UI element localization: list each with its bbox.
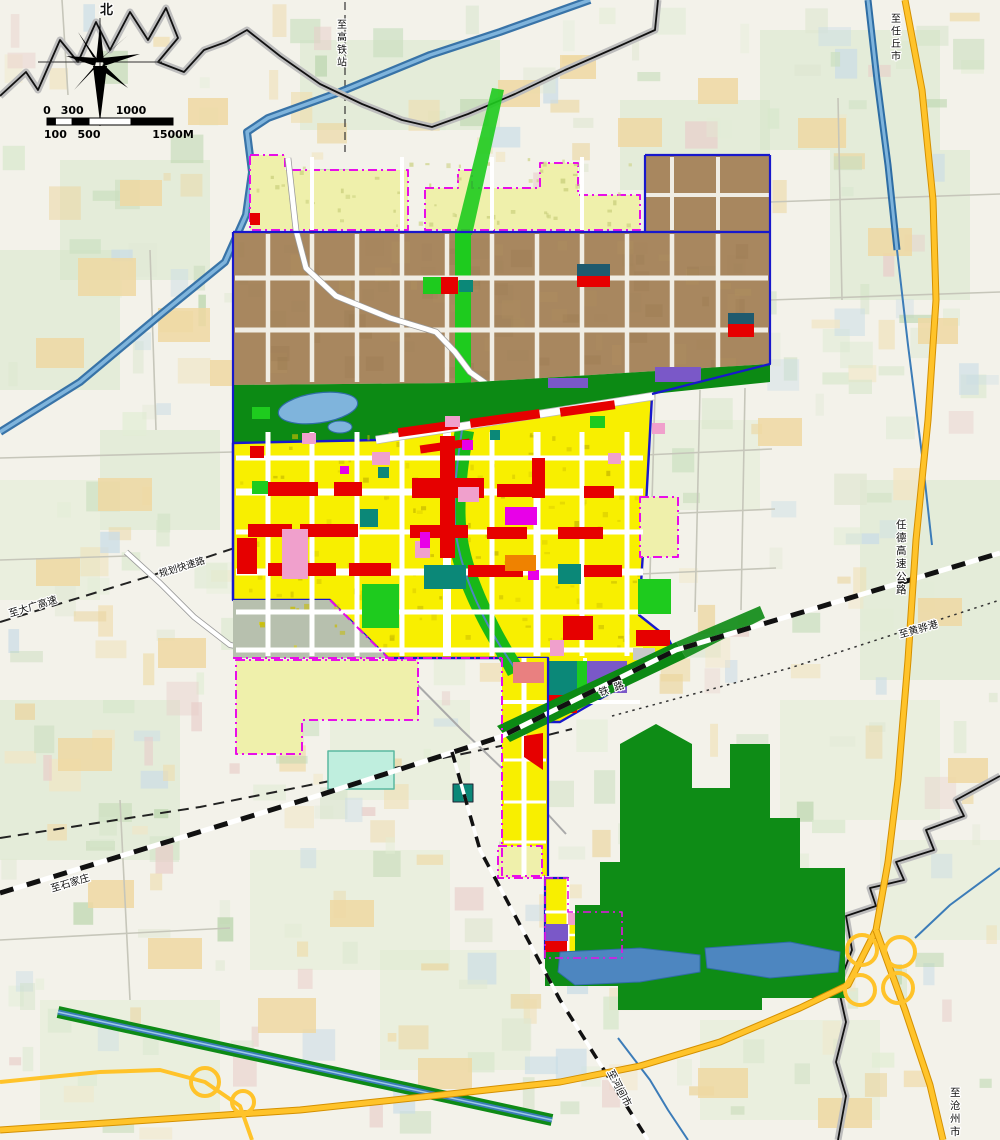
rural-texture <box>78 1075 97 1086</box>
brown-texture <box>249 284 263 297</box>
scalebar-segment <box>89 118 131 125</box>
rural-texture <box>879 320 895 350</box>
city-texture <box>544 552 550 554</box>
city-texture <box>468 523 470 528</box>
city-texture <box>560 502 565 505</box>
rural-texture <box>96 640 127 658</box>
village-patch <box>58 738 112 771</box>
rural-texture <box>9 1057 21 1065</box>
brown-texture <box>634 271 650 291</box>
rural-texture <box>34 726 54 754</box>
palezone-texture <box>396 224 398 227</box>
rural-texture <box>442 691 450 705</box>
school-block <box>282 529 308 579</box>
factory-block-teal <box>459 280 473 292</box>
city-texture <box>515 598 520 602</box>
palezone-texture <box>341 189 344 194</box>
rural-texture <box>849 100 867 109</box>
scalebar-label: 1500M <box>152 128 194 141</box>
palezone-texture <box>455 214 457 217</box>
brown-texture <box>511 250 532 267</box>
rural-texture <box>931 854 952 879</box>
village-patch <box>88 880 134 908</box>
city-texture <box>290 607 295 609</box>
brown-texture <box>278 357 288 370</box>
rural-texture <box>876 677 887 694</box>
rural-texture <box>317 123 347 143</box>
palezone-texture <box>543 162 547 167</box>
rural-texture <box>468 953 497 985</box>
rural-texture <box>702 398 733 429</box>
commercial-strip <box>563 616 593 640</box>
rural-texture <box>103 700 134 713</box>
rural-texture <box>966 375 999 385</box>
palezone-texture <box>629 163 632 166</box>
park-block <box>362 584 399 628</box>
rural-texture <box>88 578 110 595</box>
city-texture <box>258 575 263 580</box>
rural-texture <box>388 1033 397 1042</box>
rural-texture <box>206 562 234 593</box>
rural-texture <box>303 1029 336 1061</box>
rural-texture <box>770 548 783 570</box>
commercial-strip <box>487 527 527 539</box>
rural-texture <box>434 656 465 686</box>
city-texture <box>289 447 293 450</box>
rural-texture <box>36 979 45 990</box>
utility-orange <box>505 555 536 571</box>
brown-texture <box>696 339 711 350</box>
rural-texture <box>866 726 883 759</box>
rural-texture <box>576 720 607 753</box>
school-block <box>608 453 621 464</box>
rural-texture <box>731 1106 745 1115</box>
rural-texture <box>20 983 35 1010</box>
city-texture <box>466 635 471 640</box>
rural-texture <box>399 1025 429 1049</box>
brown-texture <box>702 297 709 307</box>
scalebar-segment <box>131 118 173 125</box>
rural-texture <box>768 108 780 128</box>
village-zone-south <box>498 846 542 878</box>
city-texture <box>420 618 423 621</box>
warehouse-strip-purple <box>655 367 701 382</box>
rural-texture <box>400 1111 431 1134</box>
brown-texture <box>612 345 622 365</box>
rural-texture <box>49 186 81 220</box>
rural-texture <box>795 65 821 76</box>
city-texture <box>240 481 243 484</box>
palezone-texture <box>271 176 274 179</box>
brown-texture <box>411 281 417 289</box>
palezone-texture <box>554 217 558 220</box>
rural-texture <box>143 653 154 685</box>
palezone-texture <box>340 219 344 222</box>
city-texture <box>413 588 417 593</box>
palezone-texture <box>393 210 395 213</box>
special-teal <box>424 565 466 589</box>
map-label: 北 <box>100 3 113 18</box>
rural-texture <box>986 925 997 944</box>
rural-texture <box>466 6 479 35</box>
city-texture <box>314 551 319 557</box>
city-texture <box>563 467 566 471</box>
palezone-texture <box>618 192 621 196</box>
rural-texture <box>822 372 848 384</box>
brown-texture <box>645 304 662 317</box>
special-teal <box>360 509 378 527</box>
rural-texture <box>50 68 68 89</box>
commercial-strip <box>268 482 318 496</box>
rural-texture <box>953 39 984 70</box>
rural-texture <box>218 917 234 941</box>
rural-texture <box>496 152 506 162</box>
rural-texture <box>285 806 315 828</box>
rural-texture <box>55 586 76 617</box>
brown-texture <box>363 289 374 300</box>
park-block <box>590 416 605 428</box>
brown-texture <box>238 242 244 257</box>
rural-texture <box>178 358 211 384</box>
rural-texture <box>849 380 872 394</box>
rural-texture <box>138 929 170 938</box>
rural-texture <box>879 366 905 375</box>
city-texture <box>439 596 442 599</box>
city-texture <box>363 478 369 483</box>
rural-texture <box>362 807 376 816</box>
rural-wash <box>860 480 1000 680</box>
scalebar-label: 500 <box>78 128 101 141</box>
rural-texture <box>23 1047 34 1071</box>
palezone-texture <box>352 195 356 198</box>
commercial-strip <box>584 565 622 577</box>
palezone-texture <box>425 163 429 165</box>
rural-texture <box>5 751 36 763</box>
rural-texture <box>954 721 967 753</box>
rural-texture <box>163 765 175 781</box>
city-texture <box>476 556 481 559</box>
brown-texture <box>540 292 558 302</box>
village-patch <box>36 558 80 586</box>
palezone-texture <box>338 208 341 212</box>
city-texture <box>421 506 426 510</box>
rural-texture <box>886 417 915 440</box>
park-block <box>252 407 270 419</box>
city-texture <box>249 589 253 593</box>
rural-texture <box>15 704 35 720</box>
city-texture <box>549 506 555 509</box>
rural-texture <box>710 724 718 757</box>
city-texture <box>413 508 416 513</box>
palezone-texture <box>613 200 616 205</box>
planning-map[interactable]: 030010001005001500M北至高铁站至任丘市任德高速公路至黄骅港至沧… <box>0 0 1000 1140</box>
commercial-strip <box>334 482 362 496</box>
scalebar-label: 100 <box>44 128 67 141</box>
palezone-texture <box>346 195 351 199</box>
rural-texture <box>273 4 287 37</box>
palezone-texture <box>487 216 491 219</box>
school-block <box>372 452 390 465</box>
palezone-texture <box>511 210 516 214</box>
rural-texture <box>525 1057 558 1075</box>
rural-texture <box>865 1073 887 1097</box>
city-texture <box>499 595 503 599</box>
village-patch <box>418 1058 472 1089</box>
rural-texture <box>660 674 683 694</box>
rural-texture <box>200 77 210 88</box>
brown-texture <box>366 238 384 256</box>
village-patch <box>36 338 84 368</box>
commercial-strip <box>636 630 670 646</box>
factory-block-slate <box>577 264 610 276</box>
palezone-texture <box>561 179 566 184</box>
city-texture <box>597 603 603 608</box>
commercial-strip <box>250 446 264 458</box>
city-texture <box>635 496 639 500</box>
palezone-texture <box>446 163 450 168</box>
brown-texture <box>502 300 521 319</box>
factory-block-red <box>728 324 754 337</box>
rural-texture <box>743 1039 764 1063</box>
brown-texture <box>495 244 503 256</box>
rural-texture <box>47 824 67 841</box>
city-texture <box>317 579 322 584</box>
village-patch <box>148 938 202 969</box>
palezone-texture <box>575 184 580 189</box>
palezone-texture <box>540 170 544 173</box>
rural-texture <box>144 737 153 766</box>
rural-texture <box>949 411 974 434</box>
city-texture <box>431 615 436 621</box>
rural-texture <box>707 118 721 137</box>
city-texture <box>606 471 610 476</box>
brown-texture <box>596 335 603 351</box>
village-patch <box>618 118 662 147</box>
palezone-texture <box>282 184 286 187</box>
rural-texture <box>883 253 894 277</box>
factory-block-green <box>423 277 441 294</box>
rural-texture <box>502 1018 531 1050</box>
rural-texture <box>837 577 850 584</box>
commercial-strip <box>410 525 468 538</box>
rural-texture <box>980 1079 992 1088</box>
city-texture <box>417 511 423 515</box>
rural-texture <box>834 527 862 545</box>
palezone-texture <box>573 174 577 176</box>
rural-texture <box>840 342 873 369</box>
rural-texture <box>842 187 854 196</box>
education-magenta <box>528 570 539 580</box>
rural-texture <box>861 609 893 632</box>
commercial-strip <box>532 458 545 498</box>
rural-texture <box>771 501 796 517</box>
village-patch <box>188 98 228 125</box>
village-patch <box>78 258 136 296</box>
village-zone-east <box>640 497 678 557</box>
rural-texture <box>70 239 101 254</box>
city-texture <box>260 622 265 627</box>
rural-texture <box>139 1127 172 1139</box>
rural-texture <box>705 668 721 693</box>
rural-texture <box>816 394 824 416</box>
city-texture <box>584 445 589 449</box>
village-patch <box>758 418 802 446</box>
city-texture <box>574 521 579 527</box>
brown-texture <box>422 244 432 261</box>
school-block <box>652 423 665 434</box>
rural-texture <box>181 174 203 197</box>
rural-texture <box>314 806 333 819</box>
rural-texture <box>315 56 327 77</box>
school-block <box>550 640 564 656</box>
city-texture <box>390 635 395 638</box>
city-texture <box>603 512 608 517</box>
palezone-texture <box>429 184 431 188</box>
scalebar-label: 300 <box>61 104 84 117</box>
city-texture <box>281 476 285 479</box>
rural-texture <box>167 682 199 716</box>
village-patch <box>330 900 374 927</box>
commercial-strip <box>349 563 391 576</box>
rural-texture <box>216 960 225 971</box>
rural-texture <box>915 953 943 967</box>
rural-texture <box>834 156 862 170</box>
brown-texture <box>494 255 502 270</box>
city-texture <box>611 581 617 584</box>
brown-texture <box>594 315 607 322</box>
education-magenta <box>462 440 473 450</box>
city-texture <box>335 625 337 628</box>
rural-texture <box>156 520 170 546</box>
palezone-texture <box>607 210 612 213</box>
brown-texture <box>728 294 740 312</box>
scalebar-label: 1000 <box>116 104 147 117</box>
rural-texture <box>156 845 174 874</box>
city-texture <box>383 644 387 648</box>
rural-texture <box>9 362 18 386</box>
rural-texture <box>465 918 493 942</box>
city-texture <box>277 594 282 597</box>
city-texture <box>292 434 298 439</box>
rural-texture <box>818 27 851 46</box>
rural-texture <box>386 837 395 854</box>
village-patch <box>698 1068 748 1098</box>
rural-texture <box>594 770 615 804</box>
city-texture <box>406 463 410 469</box>
village-patch <box>948 758 988 783</box>
palezone-texture <box>562 160 565 164</box>
brown-texture <box>636 255 645 265</box>
commercial-strip <box>300 524 358 537</box>
palezone-texture <box>306 200 309 204</box>
brown-texture <box>472 239 493 259</box>
palezone-texture <box>537 179 539 182</box>
rural-texture <box>795 1063 810 1084</box>
rural-texture <box>972 824 980 845</box>
rural-texture <box>64 1086 94 1102</box>
school-block <box>445 416 460 427</box>
rural-texture <box>830 736 855 746</box>
palezone-texture <box>459 165 461 168</box>
hospital-block-salmon <box>513 662 544 683</box>
logistics-purple <box>545 924 568 941</box>
village-patch <box>98 478 152 511</box>
village-patch <box>258 998 316 1033</box>
education-magenta <box>505 507 537 525</box>
rural-texture <box>459 980 487 989</box>
rural-texture <box>455 887 484 910</box>
palezone-texture <box>564 188 569 191</box>
rural-texture <box>603 997 618 1030</box>
commercial-strip <box>558 527 603 539</box>
city-texture <box>633 581 637 584</box>
city-texture <box>526 626 532 628</box>
rural-texture <box>8 53 36 69</box>
city-texture <box>522 618 527 621</box>
rural-texture <box>90 839 114 847</box>
special-teal <box>490 430 500 440</box>
rural-texture <box>150 874 162 891</box>
village-patch <box>120 180 162 206</box>
brown-texture <box>366 357 384 371</box>
rural-texture <box>560 1101 579 1114</box>
rural-texture <box>1 859 16 880</box>
rural-texture <box>417 855 443 865</box>
rural-texture <box>156 403 171 415</box>
rural-texture <box>269 70 278 100</box>
factory-block-slate <box>728 313 754 324</box>
palezone-texture <box>529 179 533 183</box>
rural-texture <box>989 693 998 702</box>
brown-texture <box>558 241 567 250</box>
palezone-texture <box>300 171 304 175</box>
palezone-texture <box>303 167 306 170</box>
education-magenta <box>420 532 430 548</box>
rural-texture <box>950 13 980 22</box>
city-texture <box>529 453 535 455</box>
palezone-texture <box>257 189 260 193</box>
park-block <box>638 579 671 614</box>
rural-texture <box>285 924 302 938</box>
rural-texture <box>373 28 403 57</box>
brown-texture <box>674 344 686 364</box>
special-teal <box>558 564 581 584</box>
city-texture <box>367 435 369 440</box>
scalebar-segment <box>72 118 89 125</box>
scalebar-label: 0 <box>43 104 51 117</box>
city-texture <box>599 625 605 629</box>
rural-texture <box>43 755 52 781</box>
city-texture <box>552 436 555 441</box>
commercial-strip <box>237 538 257 574</box>
rural-texture <box>773 180 787 213</box>
rural-texture <box>3 146 25 170</box>
rural-texture <box>867 493 892 503</box>
park-pond-small <box>328 421 352 433</box>
rural-texture <box>599 8 615 24</box>
rural-texture <box>164 173 171 181</box>
city-texture <box>542 540 548 545</box>
rural-texture <box>916 26 948 46</box>
education-magenta <box>340 466 349 474</box>
palezone-texture <box>434 204 436 206</box>
city-texture <box>304 604 309 610</box>
rural-texture <box>130 1007 141 1024</box>
city-texture <box>617 520 620 522</box>
rural-texture <box>672 448 694 472</box>
factory-block-red <box>441 277 458 294</box>
rural-texture <box>314 27 331 50</box>
